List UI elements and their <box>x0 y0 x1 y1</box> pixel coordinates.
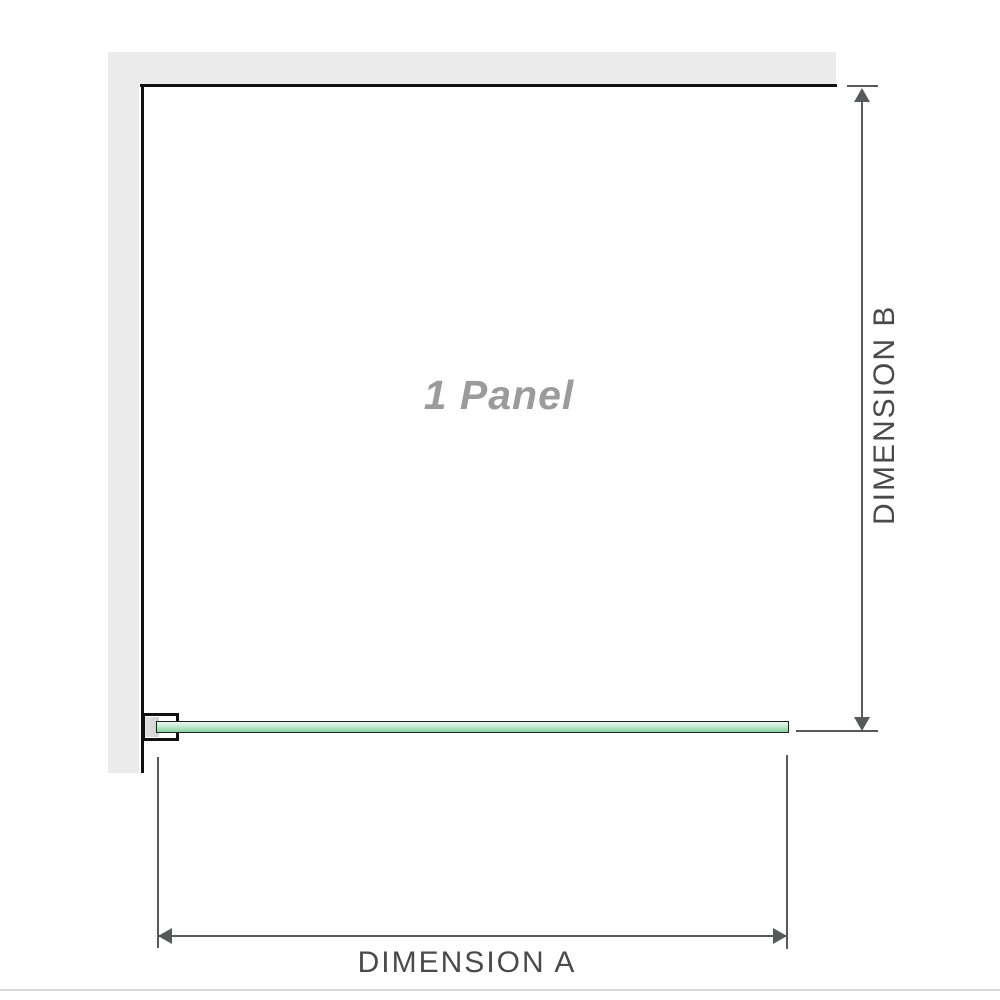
dimension-a-right-extension <box>786 755 788 949</box>
panel-dimension-diagram: 1 Panel DIMENSION B DIMENSION A <box>0 0 1000 1000</box>
dimension-a-left-extension <box>157 757 159 948</box>
wall-top-bar <box>108 52 836 84</box>
dimension-a-line <box>158 935 787 937</box>
wall-left-bar <box>108 52 139 773</box>
dimension-b-arrow-up-icon <box>854 88 870 102</box>
dimension-a-arrow-right-icon <box>773 928 787 944</box>
glass-panel <box>156 721 789 733</box>
wall-left-line <box>141 84 144 773</box>
dimension-a-arrow-left-icon <box>158 928 172 944</box>
bottom-separator-line <box>0 989 1000 991</box>
wall-top-line <box>140 84 837 87</box>
dimension-b-line <box>861 100 863 720</box>
dimension-b-label: DIMENSION B <box>867 315 903 515</box>
panel-count-watermark: 1 Panel <box>389 372 609 419</box>
dimension-a-label: DIMENSION A <box>317 946 617 980</box>
dimension-b-arrow-down-icon <box>854 717 870 731</box>
dimension-b-top-cap <box>847 85 878 87</box>
